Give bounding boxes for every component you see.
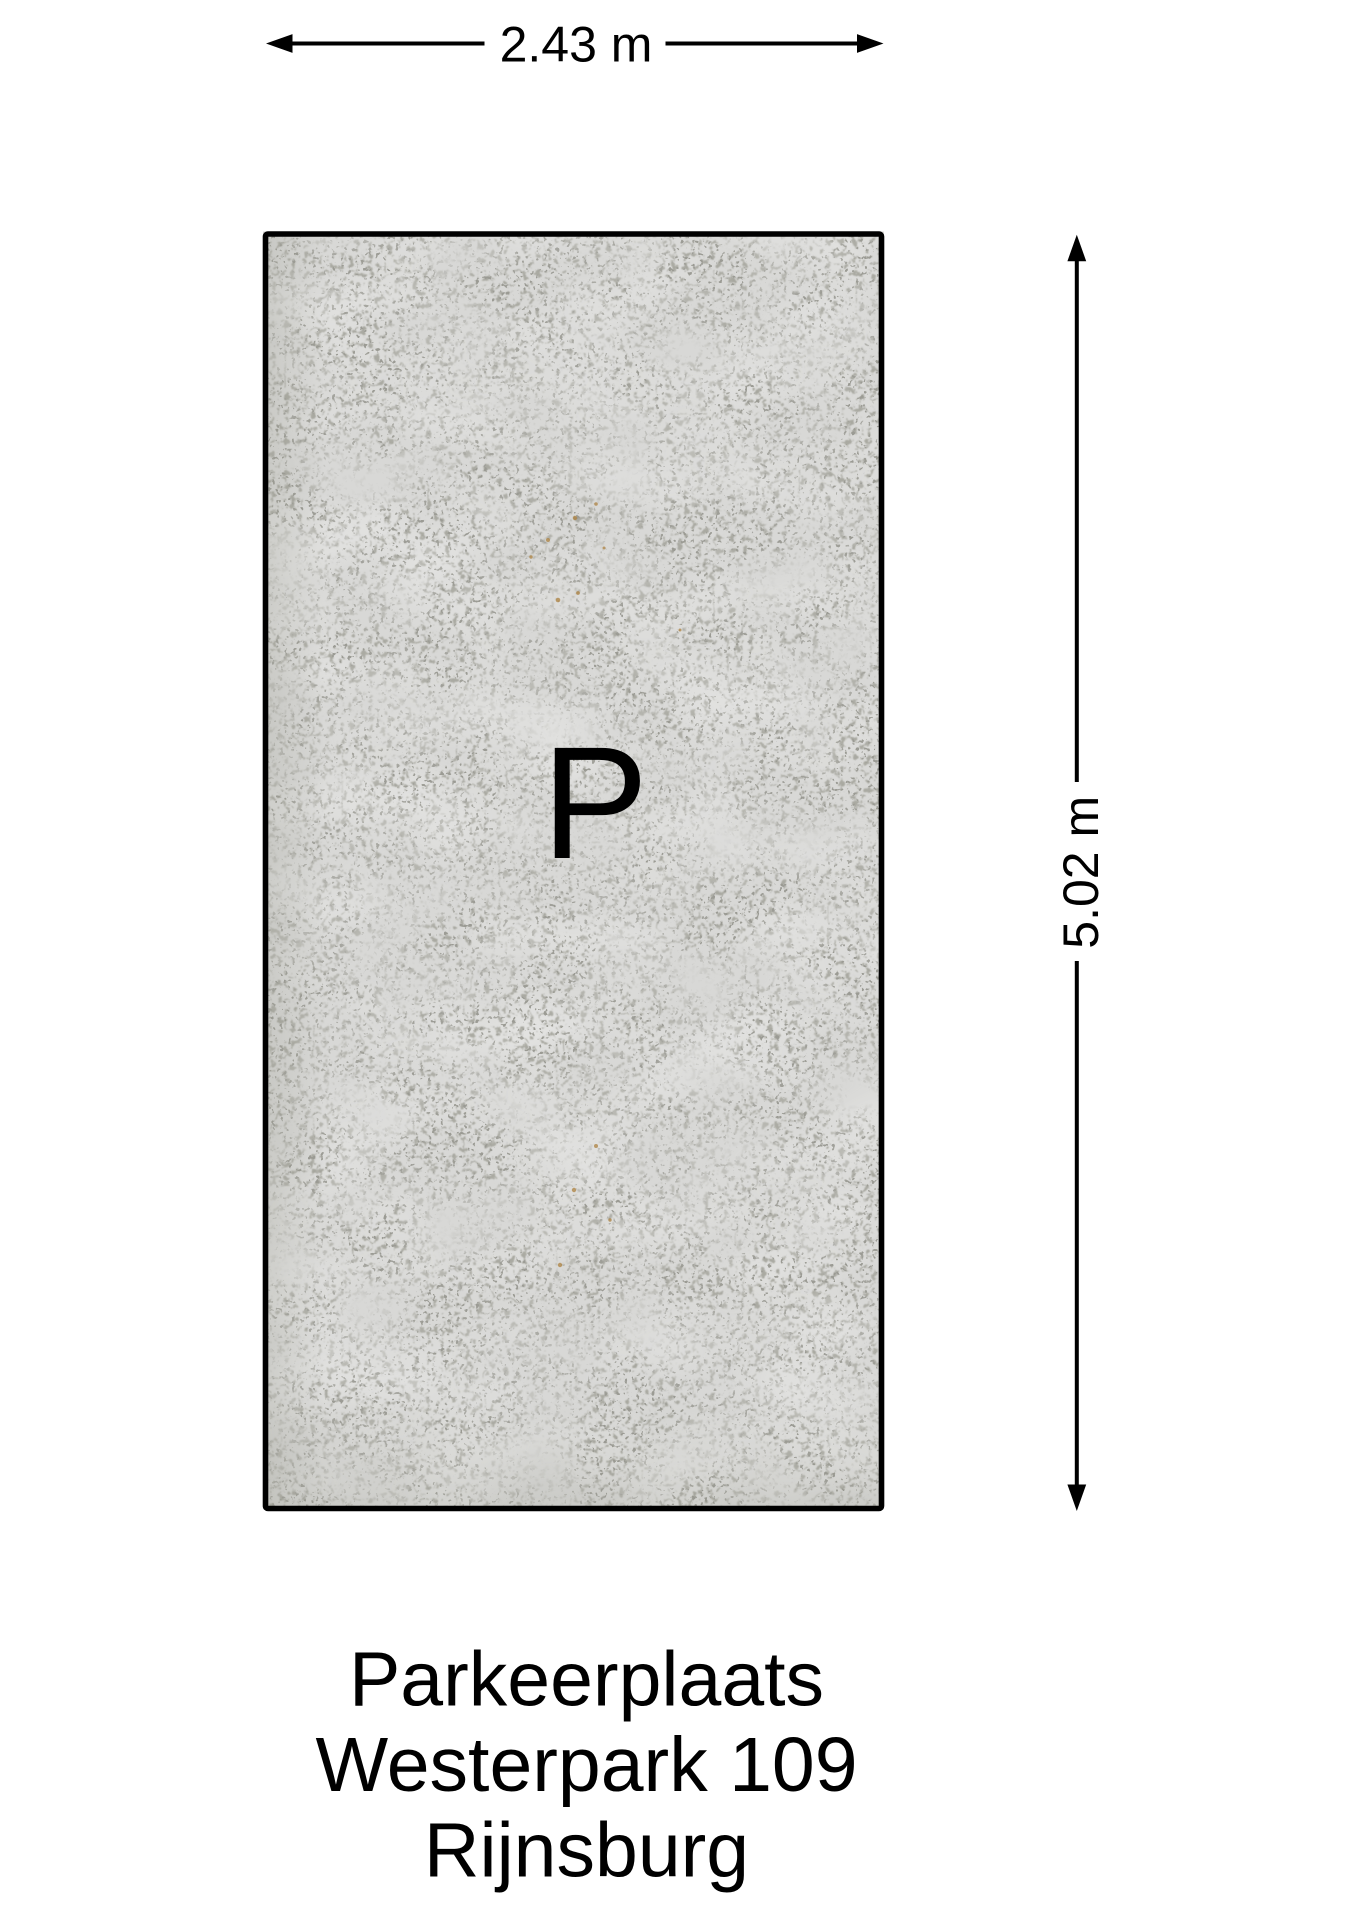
svg-text:Rijnsburg: Rijnsburg [424,1808,749,1894]
svg-text:Westerpark 109: Westerpark 109 [315,1722,857,1808]
svg-text:5.02 m: 5.02 m [1053,796,1109,949]
svg-text:Parkeerplaats: Parkeerplaats [349,1637,824,1723]
svg-text:2.43 m: 2.43 m [500,17,653,73]
svg-text:P: P [542,713,649,892]
